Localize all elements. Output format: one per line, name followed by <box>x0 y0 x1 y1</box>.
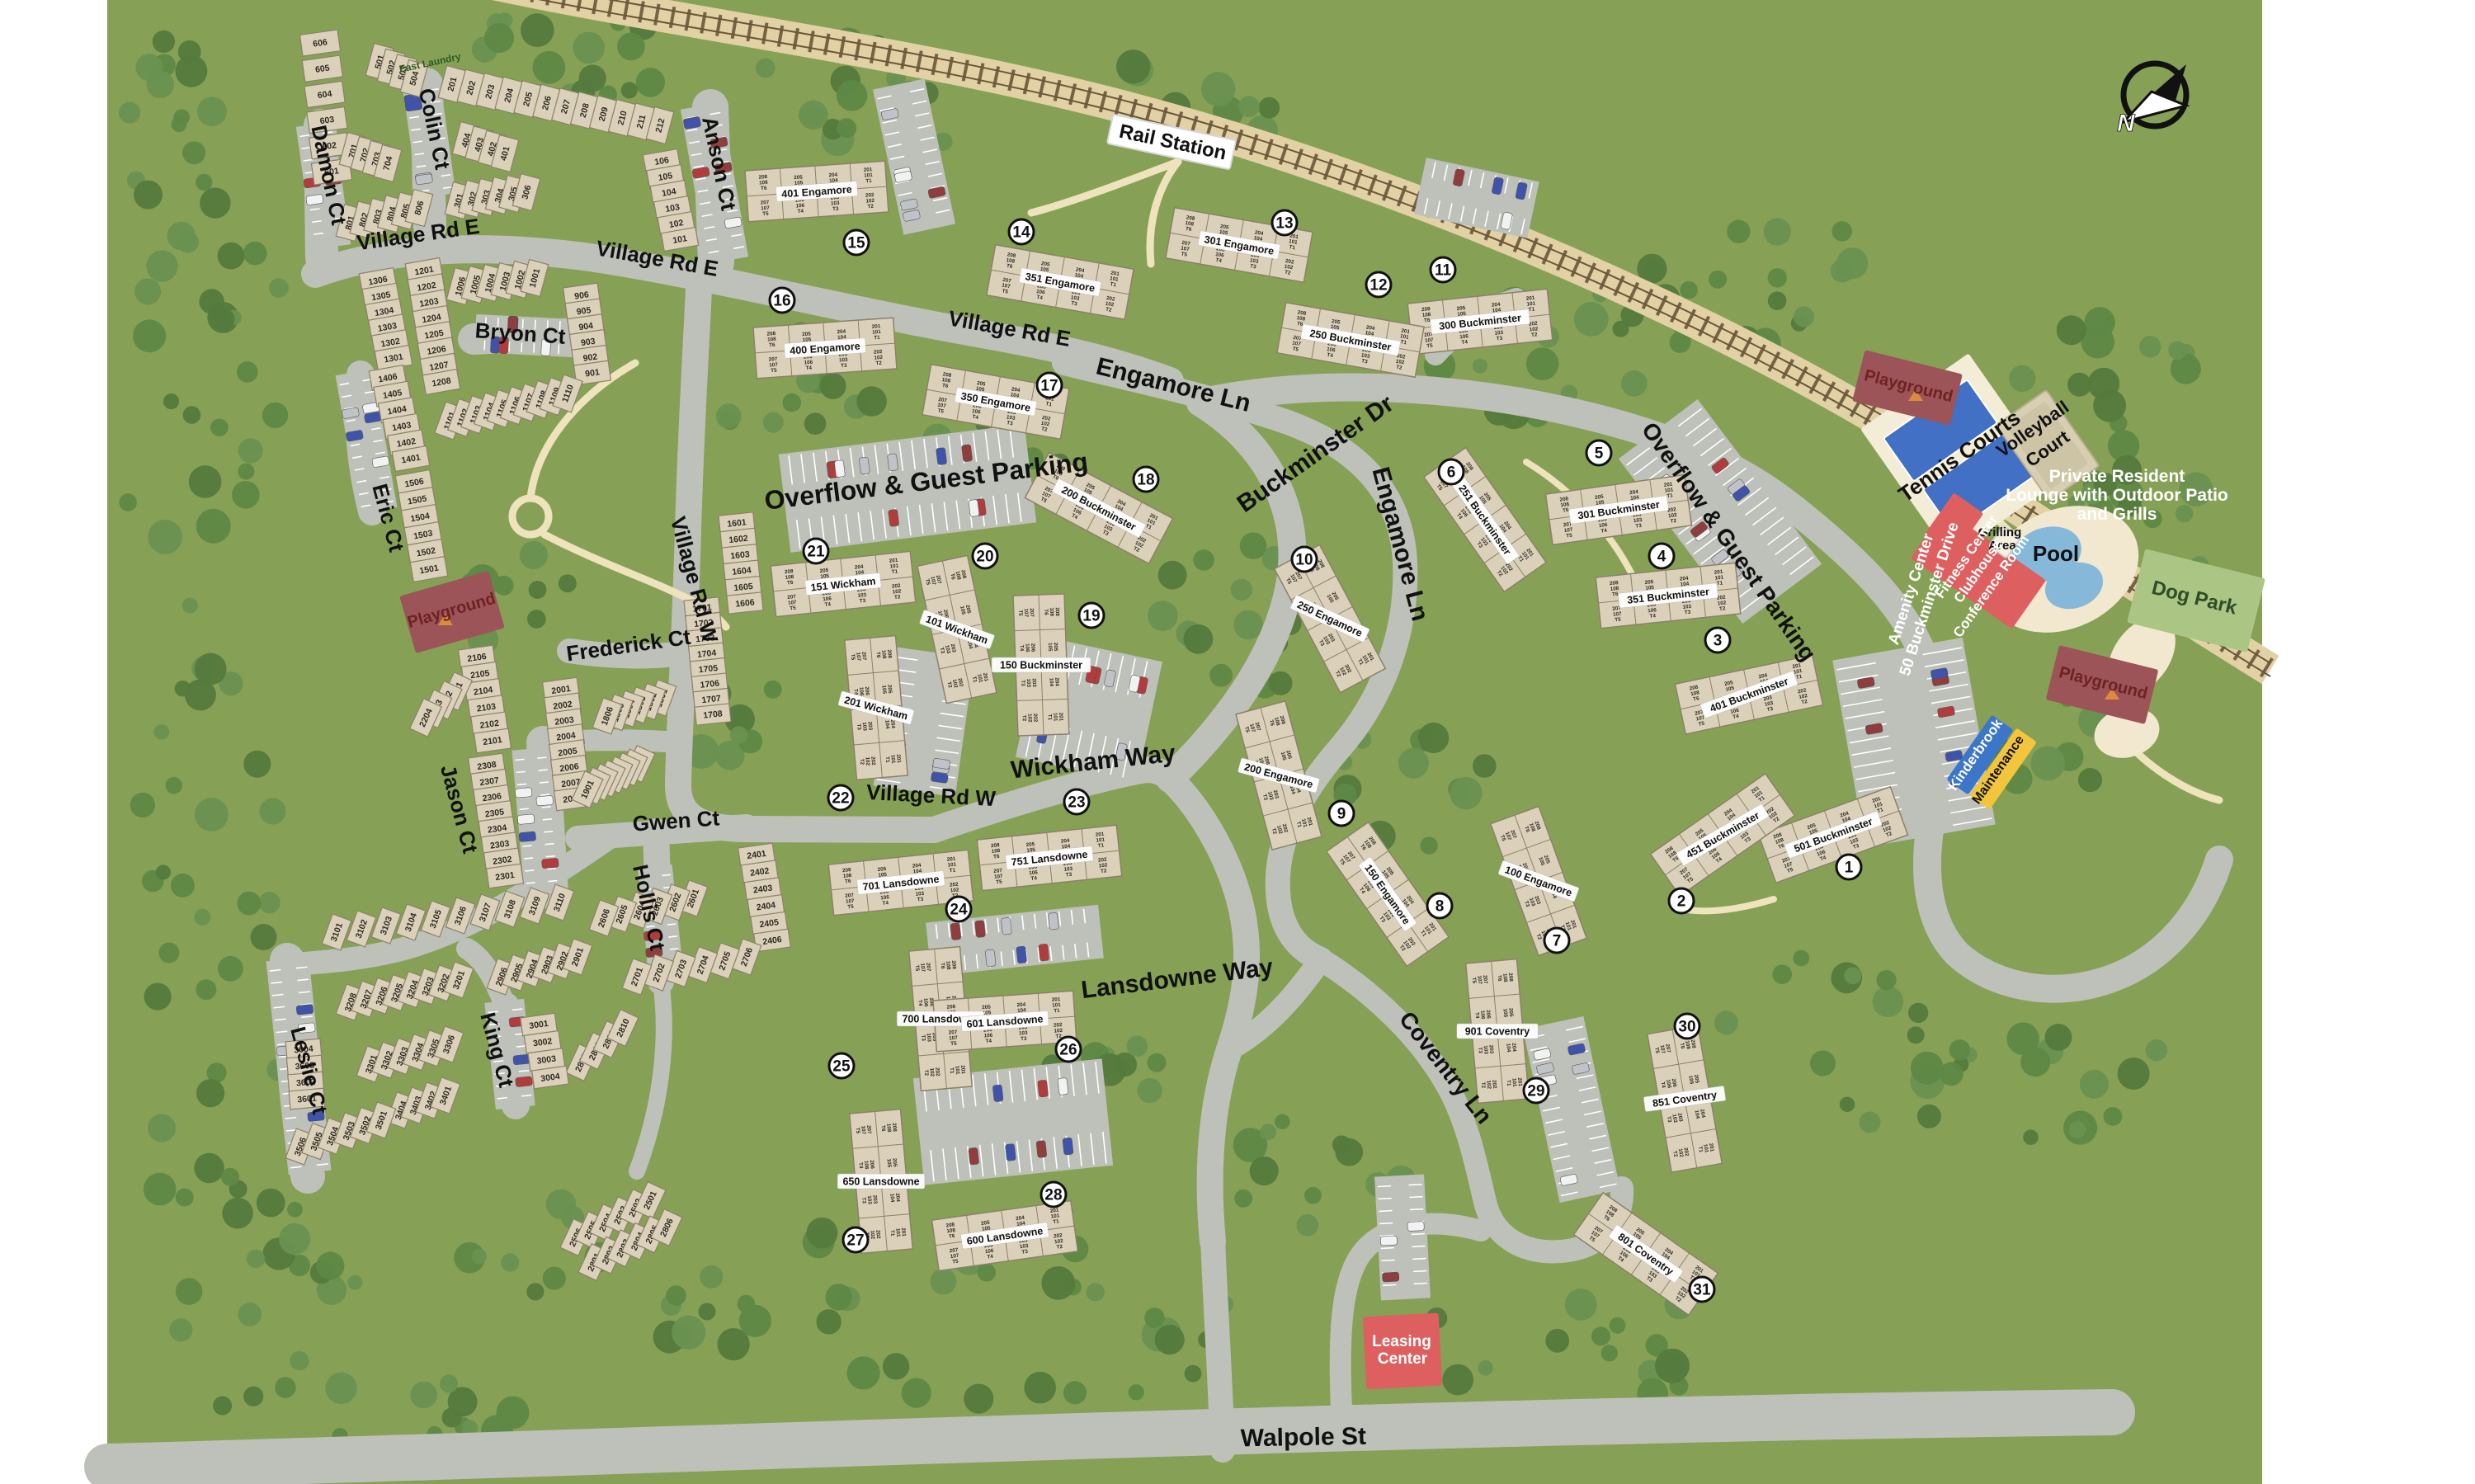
parked-car <box>969 1147 979 1165</box>
tree <box>1810 1051 1836 1076</box>
apartment-unit-cell: 205105 <box>881 685 893 695</box>
tree <box>1565 1288 1597 1321</box>
tree <box>1772 964 1792 984</box>
tree <box>134 279 161 305</box>
tree <box>856 386 887 417</box>
parked-car <box>889 509 899 526</box>
tree <box>1240 532 1267 559</box>
tree <box>2176 505 2194 523</box>
tree <box>1238 96 1260 117</box>
tree <box>1144 1307 1165 1328</box>
unit-number: 1604 <box>732 565 752 577</box>
marker-number: 28 <box>1044 1187 1062 1204</box>
tree <box>2030 747 2065 781</box>
tree <box>1127 1036 1148 1058</box>
unit-number: 605 <box>314 64 330 75</box>
tree <box>497 1397 530 1430</box>
tree <box>1768 291 1787 310</box>
unit-number: 604 <box>317 89 332 101</box>
tree <box>218 243 245 270</box>
tree <box>471 1249 487 1265</box>
tree <box>1193 549 1214 571</box>
map-marker-17: 17 <box>1037 373 1062 398</box>
tree <box>1234 1190 1252 1208</box>
tree <box>316 1251 344 1279</box>
tree <box>196 174 212 191</box>
tree <box>617 33 645 61</box>
tree <box>2020 1047 2050 1076</box>
tree <box>1601 1345 1618 1361</box>
map-marker-13: 13 <box>1272 210 1297 235</box>
tree <box>1129 1384 1144 1400</box>
tree <box>1148 601 1178 631</box>
tree <box>756 59 775 78</box>
tree <box>196 509 231 544</box>
tree <box>1233 610 1263 640</box>
tree <box>1873 987 1904 1018</box>
tree <box>325 1373 356 1404</box>
tree <box>290 1351 309 1370</box>
tree <box>243 1387 263 1406</box>
tree <box>196 979 216 1000</box>
marker-number: 23 <box>1068 794 1085 812</box>
tree <box>1831 221 1852 242</box>
tree <box>221 1168 239 1186</box>
map-marker-3: 3 <box>1705 628 1730 652</box>
marker-number: 2 <box>1677 893 1686 911</box>
tree <box>807 1218 838 1249</box>
marker-number: 6 <box>1447 464 1456 482</box>
tree <box>259 892 280 913</box>
tree <box>120 493 137 511</box>
townhouse-unit-606: 606 <box>299 30 340 56</box>
parked-car <box>985 949 996 967</box>
parked-car <box>1038 1080 1049 1097</box>
tree <box>1209 664 1233 687</box>
tree <box>1911 1052 1944 1085</box>
apartment-unit-cell: 204104 <box>837 328 846 341</box>
tree <box>197 97 227 126</box>
tree <box>247 1250 265 1268</box>
marker-number: 21 <box>807 544 825 561</box>
marker-number: 22 <box>832 790 849 808</box>
tree <box>200 187 230 218</box>
tree <box>816 1309 841 1334</box>
parked-car <box>969 499 979 516</box>
map-marker-1: 1 <box>1836 855 1861 879</box>
tree <box>144 1173 177 1206</box>
tree <box>440 1374 458 1392</box>
unit-number: 901 <box>585 367 601 379</box>
marker-number: 9 <box>1337 806 1346 823</box>
tree <box>262 403 288 428</box>
tree <box>195 798 229 832</box>
tree <box>931 1269 957 1295</box>
tree <box>1917 1105 1941 1128</box>
tree <box>1087 1283 1105 1301</box>
tree <box>134 181 163 210</box>
tree <box>672 1316 705 1350</box>
marker-number: 7 <box>1553 933 1562 950</box>
tree <box>520 541 548 569</box>
parked-car <box>834 460 845 478</box>
tree <box>1398 748 1429 779</box>
apartment-unit-cell: 204104 <box>1048 677 1059 686</box>
tree <box>1185 1365 1202 1383</box>
tree <box>526 1283 544 1300</box>
tree <box>1877 970 1897 990</box>
tree <box>144 983 172 1011</box>
parking-lot-19 <box>1374 1175 1431 1301</box>
tree <box>804 412 827 435</box>
tree <box>148 520 182 554</box>
tree <box>1793 950 1809 967</box>
apartment-unit-cell: 205105 <box>1047 643 1058 652</box>
parked-car <box>961 445 972 462</box>
tree <box>1714 1011 1738 1034</box>
tree <box>171 874 195 897</box>
label-pool: Pool <box>2033 541 2079 566</box>
tree <box>163 393 179 409</box>
townhouse-unit-605: 605 <box>302 55 342 82</box>
tree <box>1418 723 1449 753</box>
tree <box>1024 1372 1056 1404</box>
tree <box>2104 1107 2123 1126</box>
map-marker-30: 30 <box>1675 1014 1699 1039</box>
tree <box>1709 271 1727 289</box>
map-marker-5: 5 <box>1586 440 1611 465</box>
map-marker-21: 21 <box>804 539 828 563</box>
apartment-unit-cell: 204104 <box>828 172 838 184</box>
tree <box>1768 268 1787 287</box>
building-name: 650 Lansdowne <box>842 1176 919 1188</box>
tree <box>902 1378 931 1408</box>
tree <box>287 1202 303 1218</box>
parked-car <box>541 858 559 869</box>
tree <box>521 13 554 47</box>
tree <box>820 373 846 399</box>
tree <box>177 231 200 253</box>
parked-car <box>1039 944 1049 961</box>
map-marker-31: 31 <box>1690 1277 1714 1302</box>
tree <box>730 726 747 743</box>
map-marker-27: 27 <box>843 1227 868 1252</box>
marker-number: 8 <box>1435 898 1445 916</box>
townhouse-unit-2101: 2101 <box>474 728 511 753</box>
unit-number: 1603 <box>730 549 751 561</box>
tree <box>232 481 260 509</box>
building-label-150-buckminster: 150 Buckminster <box>992 657 1091 672</box>
tree <box>1138 1078 1162 1103</box>
map-marker-24: 24 <box>946 897 971 921</box>
tree <box>716 403 742 429</box>
parked-car <box>1063 1138 1073 1155</box>
tree <box>2045 1024 2072 1051</box>
parked-car <box>296 1004 313 1015</box>
tree <box>175 55 207 87</box>
tree <box>148 1114 176 1142</box>
tree <box>636 68 666 97</box>
parked-car <box>517 814 535 825</box>
tree <box>275 1377 296 1398</box>
compass-north-label: N <box>2117 110 2136 137</box>
map-marker-2: 2 <box>1669 888 1694 913</box>
parked-car <box>1407 1222 1425 1232</box>
tree <box>269 278 289 298</box>
parked-car <box>859 457 870 474</box>
site-map-page: 6066056046036026015015025035042012022032… <box>0 0 2475 1484</box>
tree <box>182 141 205 164</box>
tree <box>1116 49 1150 83</box>
apartment-unit-cell: 204104 <box>884 719 896 729</box>
tree <box>2069 1121 2086 1138</box>
tree <box>783 393 802 412</box>
apartment-unit-cell: 205105 <box>794 174 804 186</box>
map-marker-15: 15 <box>844 230 869 255</box>
marker-number: 5 <box>1595 445 1604 463</box>
tree <box>210 419 229 437</box>
tree <box>1836 247 1868 279</box>
marker-number: 25 <box>832 1058 851 1076</box>
map-marker-23: 23 <box>1064 789 1089 814</box>
parked-car <box>536 795 554 806</box>
apartment-unit-cell: 204104 <box>1505 1043 1517 1053</box>
building-name: 150 Buckminster <box>1000 660 1082 671</box>
map-marker-16: 16 <box>770 288 794 313</box>
tree <box>1949 1039 1971 1061</box>
tree <box>119 102 140 124</box>
marker-number: 12 <box>1369 277 1387 294</box>
tree <box>1158 561 1187 590</box>
parked-car <box>992 1085 1003 1102</box>
tree <box>764 681 782 699</box>
parked-car <box>932 758 950 770</box>
tree <box>2078 768 2102 792</box>
unit-number: 1704 <box>696 648 717 660</box>
apartment-unit-cell: 204104 <box>1016 1001 1026 1014</box>
tree <box>189 465 222 498</box>
unit-number: 1708 <box>703 709 724 720</box>
map-marker-6: 6 <box>1439 459 1464 484</box>
tree <box>2146 1039 2167 1061</box>
tree <box>1275 1114 1290 1130</box>
parked-car <box>519 832 536 842</box>
tree <box>1844 968 1861 985</box>
tree <box>251 924 277 950</box>
tree <box>763 412 784 432</box>
parked-car <box>931 772 948 784</box>
apartment-unit-cell: 205105 <box>802 331 812 343</box>
parked-car <box>1380 1236 1398 1246</box>
tree <box>259 798 285 824</box>
apartment-unit-cell: 205105 <box>886 1158 898 1168</box>
tree <box>1574 302 1609 337</box>
tree <box>2023 1129 2039 1145</box>
tree <box>222 1198 253 1229</box>
parked-car <box>415 173 432 185</box>
tree <box>2084 307 2115 338</box>
tree <box>1155 1325 1185 1354</box>
townhouse-unit-2301: 2301 <box>487 864 524 888</box>
tree <box>1860 1112 1881 1133</box>
parked-car <box>1048 912 1058 930</box>
marker-number: 18 <box>1137 472 1154 489</box>
tree <box>2009 365 2035 392</box>
tree <box>218 956 243 982</box>
parked-car <box>1005 1143 1016 1161</box>
tree <box>825 1284 851 1310</box>
tree <box>146 250 177 281</box>
tree <box>883 1353 909 1379</box>
tree <box>529 581 547 599</box>
parked-car <box>975 921 986 938</box>
tree <box>238 1303 262 1326</box>
parked-car <box>950 923 961 940</box>
tree <box>237 892 261 916</box>
tree <box>1296 1214 1318 1237</box>
tree <box>1231 579 1252 601</box>
tree <box>1794 306 1814 327</box>
tree <box>183 406 201 424</box>
unit-number: 1601 <box>727 517 747 529</box>
unit-number: 1605 <box>733 582 754 593</box>
marker-number: 10 <box>1295 552 1313 569</box>
label-lounge-with-outdoor-patio: Lounge with Outdoor Patio <box>2006 486 2227 505</box>
tree <box>964 1384 993 1414</box>
marker-number: 3 <box>1714 633 1723 650</box>
tree <box>1840 1097 1855 1112</box>
tree <box>279 1223 310 1255</box>
tree <box>978 1263 996 1281</box>
marker-number: 30 <box>1678 1019 1695 1036</box>
tree <box>666 1285 686 1306</box>
tree <box>1335 1138 1363 1166</box>
tree <box>700 1265 723 1288</box>
marker-number: 26 <box>1059 1042 1077 1059</box>
tree <box>837 80 868 111</box>
apartment-unit-cell: 205105 <box>1502 1008 1515 1018</box>
map-marker-18: 18 <box>1134 467 1158 492</box>
label-private-resident: Private Resident <box>2049 467 2185 486</box>
tree <box>847 1356 880 1389</box>
marker-number: 16 <box>773 293 790 310</box>
tree <box>1478 1360 1493 1376</box>
map-marker-20: 20 <box>973 544 997 568</box>
map-marker-26: 26 <box>1056 1037 1081 1062</box>
marker-number: 17 <box>1040 378 1058 395</box>
unit-number: 606 <box>313 37 328 49</box>
tree <box>1764 218 1791 245</box>
map-marker-9: 9 <box>1329 801 1354 826</box>
tree <box>194 1153 224 1183</box>
tree <box>211 308 234 331</box>
parked-car <box>515 788 532 799</box>
tree <box>2118 1058 2150 1090</box>
tree <box>543 1267 566 1290</box>
townhouse-unit-604: 604 <box>304 81 345 107</box>
unit-number: 1602 <box>728 534 749 545</box>
unit-number: 1706 <box>700 678 720 690</box>
parked-car <box>513 1054 530 1065</box>
tree <box>1621 370 1648 397</box>
tree <box>347 1275 362 1290</box>
label-leasing: Leasing <box>1372 1333 1431 1350</box>
map-marker-12: 12 <box>1366 272 1391 297</box>
tree <box>837 118 856 138</box>
map-marker-14: 14 <box>1009 219 1034 244</box>
tree <box>533 51 566 84</box>
marker-number: 31 <box>1693 1282 1711 1299</box>
tree <box>147 71 174 98</box>
townhouse-unit-1606: 1606 <box>727 592 763 614</box>
marker-number: 13 <box>1275 215 1293 233</box>
tree <box>1269 671 1293 695</box>
tree <box>501 1253 519 1271</box>
tree <box>194 909 210 926</box>
parked-car <box>1058 1078 1068 1095</box>
map-marker-10: 10 <box>1292 547 1317 572</box>
marker-number: 4 <box>1657 549 1666 566</box>
tree <box>173 109 190 125</box>
label-center: Center <box>1378 1350 1428 1368</box>
tree <box>1473 359 1487 374</box>
label-walpole-st: Walpole St <box>1240 1423 1366 1453</box>
tree <box>1591 1326 1610 1345</box>
tree <box>1545 1329 1569 1353</box>
tree <box>169 1318 192 1341</box>
building-name: 901 Coventry <box>1465 1026 1530 1038</box>
tree <box>243 242 267 266</box>
tree <box>238 438 263 463</box>
tree <box>621 82 638 98</box>
building-label-650-lansdowne: 650 Lansdowne <box>837 1174 925 1189</box>
townhouse-unit-1708: 1708 <box>695 704 731 725</box>
tree <box>2168 342 2187 360</box>
parked-car <box>1001 917 1011 935</box>
marker-number: 19 <box>1082 608 1100 625</box>
tree <box>1473 754 1497 778</box>
tree <box>166 777 182 794</box>
tree <box>579 64 606 92</box>
road-1 <box>1213 1237 1223 1450</box>
tree <box>699 1303 716 1321</box>
parked-car <box>1016 946 1027 963</box>
tree <box>527 610 546 629</box>
tree <box>2139 336 2161 357</box>
tree <box>1304 1187 1322 1204</box>
site-map: 6066056046036026015015025035042012022032… <box>0 0 2475 1484</box>
parked-car <box>1382 1272 1399 1282</box>
tree <box>1250 1157 1279 1185</box>
tree <box>156 864 171 879</box>
marker-number: 27 <box>846 1232 864 1250</box>
tree <box>243 751 271 778</box>
map-marker-19: 19 <box>1079 603 1104 628</box>
tree <box>484 23 514 53</box>
tree <box>175 681 191 697</box>
building-label-901-coventry: 901 Coventry <box>1457 1024 1538 1039</box>
tree <box>154 724 170 740</box>
map-marker-29: 29 <box>1524 1078 1549 1103</box>
tree <box>410 1382 437 1409</box>
tree <box>133 319 166 352</box>
tree <box>1908 1003 1928 1023</box>
tree <box>1260 1124 1276 1140</box>
tree <box>559 574 577 592</box>
map-marker-8: 8 <box>1427 893 1452 918</box>
map-marker-4: 4 <box>1649 544 1674 568</box>
tree <box>1258 97 1280 119</box>
